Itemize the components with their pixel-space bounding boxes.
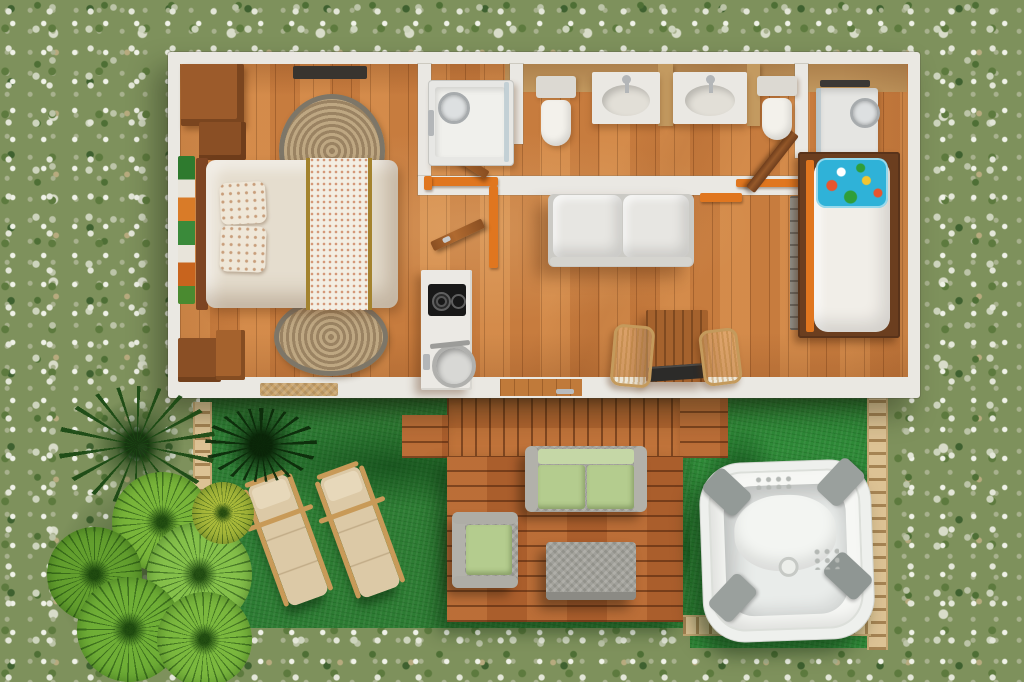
burner-small — [451, 294, 466, 309]
wardrobe-lower — [199, 122, 246, 160]
toilet-bowl — [762, 98, 792, 140]
outdoor-armchair — [452, 512, 518, 588]
kitchen-faucet — [423, 354, 430, 370]
door-handle — [442, 235, 451, 243]
sofa-cushion-left — [553, 195, 622, 258]
loveseat-arm-right — [634, 446, 647, 512]
vanity-spout — [709, 83, 713, 93]
bungalow — [168, 52, 920, 398]
armchair-arm-bottom — [452, 576, 518, 588]
door-ledge-orange — [700, 193, 742, 202]
sofa-cushion-right — [623, 195, 689, 258]
hot-tub — [698, 458, 874, 642]
floorplan-render — [0, 0, 1024, 682]
kids-bed-rail — [806, 160, 814, 332]
outdoor-loveseat — [525, 446, 647, 512]
armchair-cushion — [466, 525, 512, 575]
bed-runner — [306, 158, 372, 310]
burner-large — [432, 292, 451, 311]
kitchenette — [421, 270, 472, 390]
bedside-cabinet-right — [216, 330, 245, 380]
shower-head — [438, 92, 470, 124]
loveseat-cushion-right — [587, 465, 634, 509]
loveseat-back-cushion — [538, 449, 634, 464]
bedroom-wall-art — [178, 156, 195, 304]
kids-bed — [798, 152, 900, 338]
shower-valve — [428, 110, 434, 136]
deck-wing-left — [402, 415, 448, 458]
vanity-sink-1 — [592, 72, 660, 124]
toilet-tank — [757, 76, 797, 96]
shower-fixture-bar — [820, 80, 870, 87]
armchair-arm-top — [452, 512, 518, 524]
bottom-sill-mat — [260, 383, 338, 396]
loveseat-cushion-left — [538, 465, 585, 509]
fan-palm-cluster — [32, 462, 272, 682]
bedside-cabinet-left — [178, 338, 221, 382]
shower-glass — [504, 82, 509, 162]
vanity-sink-2 — [673, 72, 747, 124]
bed-pillow-1 — [219, 181, 267, 225]
sofa — [548, 194, 694, 267]
hot-tub-jets-top — [754, 475, 794, 490]
vanity-spout — [625, 83, 629, 93]
ceiling-vent — [293, 66, 367, 79]
shower-head — [850, 98, 880, 128]
toilet-right — [757, 76, 797, 140]
desk-chair-right — [698, 327, 744, 387]
wardrobe-upper — [181, 64, 244, 126]
patio-doorway-gap — [500, 379, 582, 396]
desk-chair-left — [609, 323, 655, 388]
coffee-table — [546, 542, 636, 600]
cooktop — [428, 284, 466, 316]
toilet-left — [536, 76, 576, 146]
kitchen-sink — [432, 344, 476, 388]
bed-pillow-2 — [219, 225, 267, 273]
deck-wing-right — [680, 396, 728, 458]
kids-bed-pillow — [816, 158, 888, 208]
patio-door-handle — [556, 389, 574, 394]
wall-tan-divider-1 — [658, 64, 673, 126]
toilet-tank — [536, 76, 576, 98]
door-post — [424, 176, 432, 190]
laptop — [649, 363, 706, 382]
hot-tub-jets-right — [813, 547, 840, 570]
shower-left — [428, 80, 512, 164]
double-bed — [196, 158, 398, 310]
coffee-table-edge — [546, 592, 636, 600]
toilet-bowl — [541, 100, 571, 146]
sofa-front-rail — [550, 257, 692, 266]
door-frame-vertical — [489, 186, 498, 268]
door-track-bath — [428, 177, 498, 186]
loveseat-arm-left — [525, 446, 538, 512]
